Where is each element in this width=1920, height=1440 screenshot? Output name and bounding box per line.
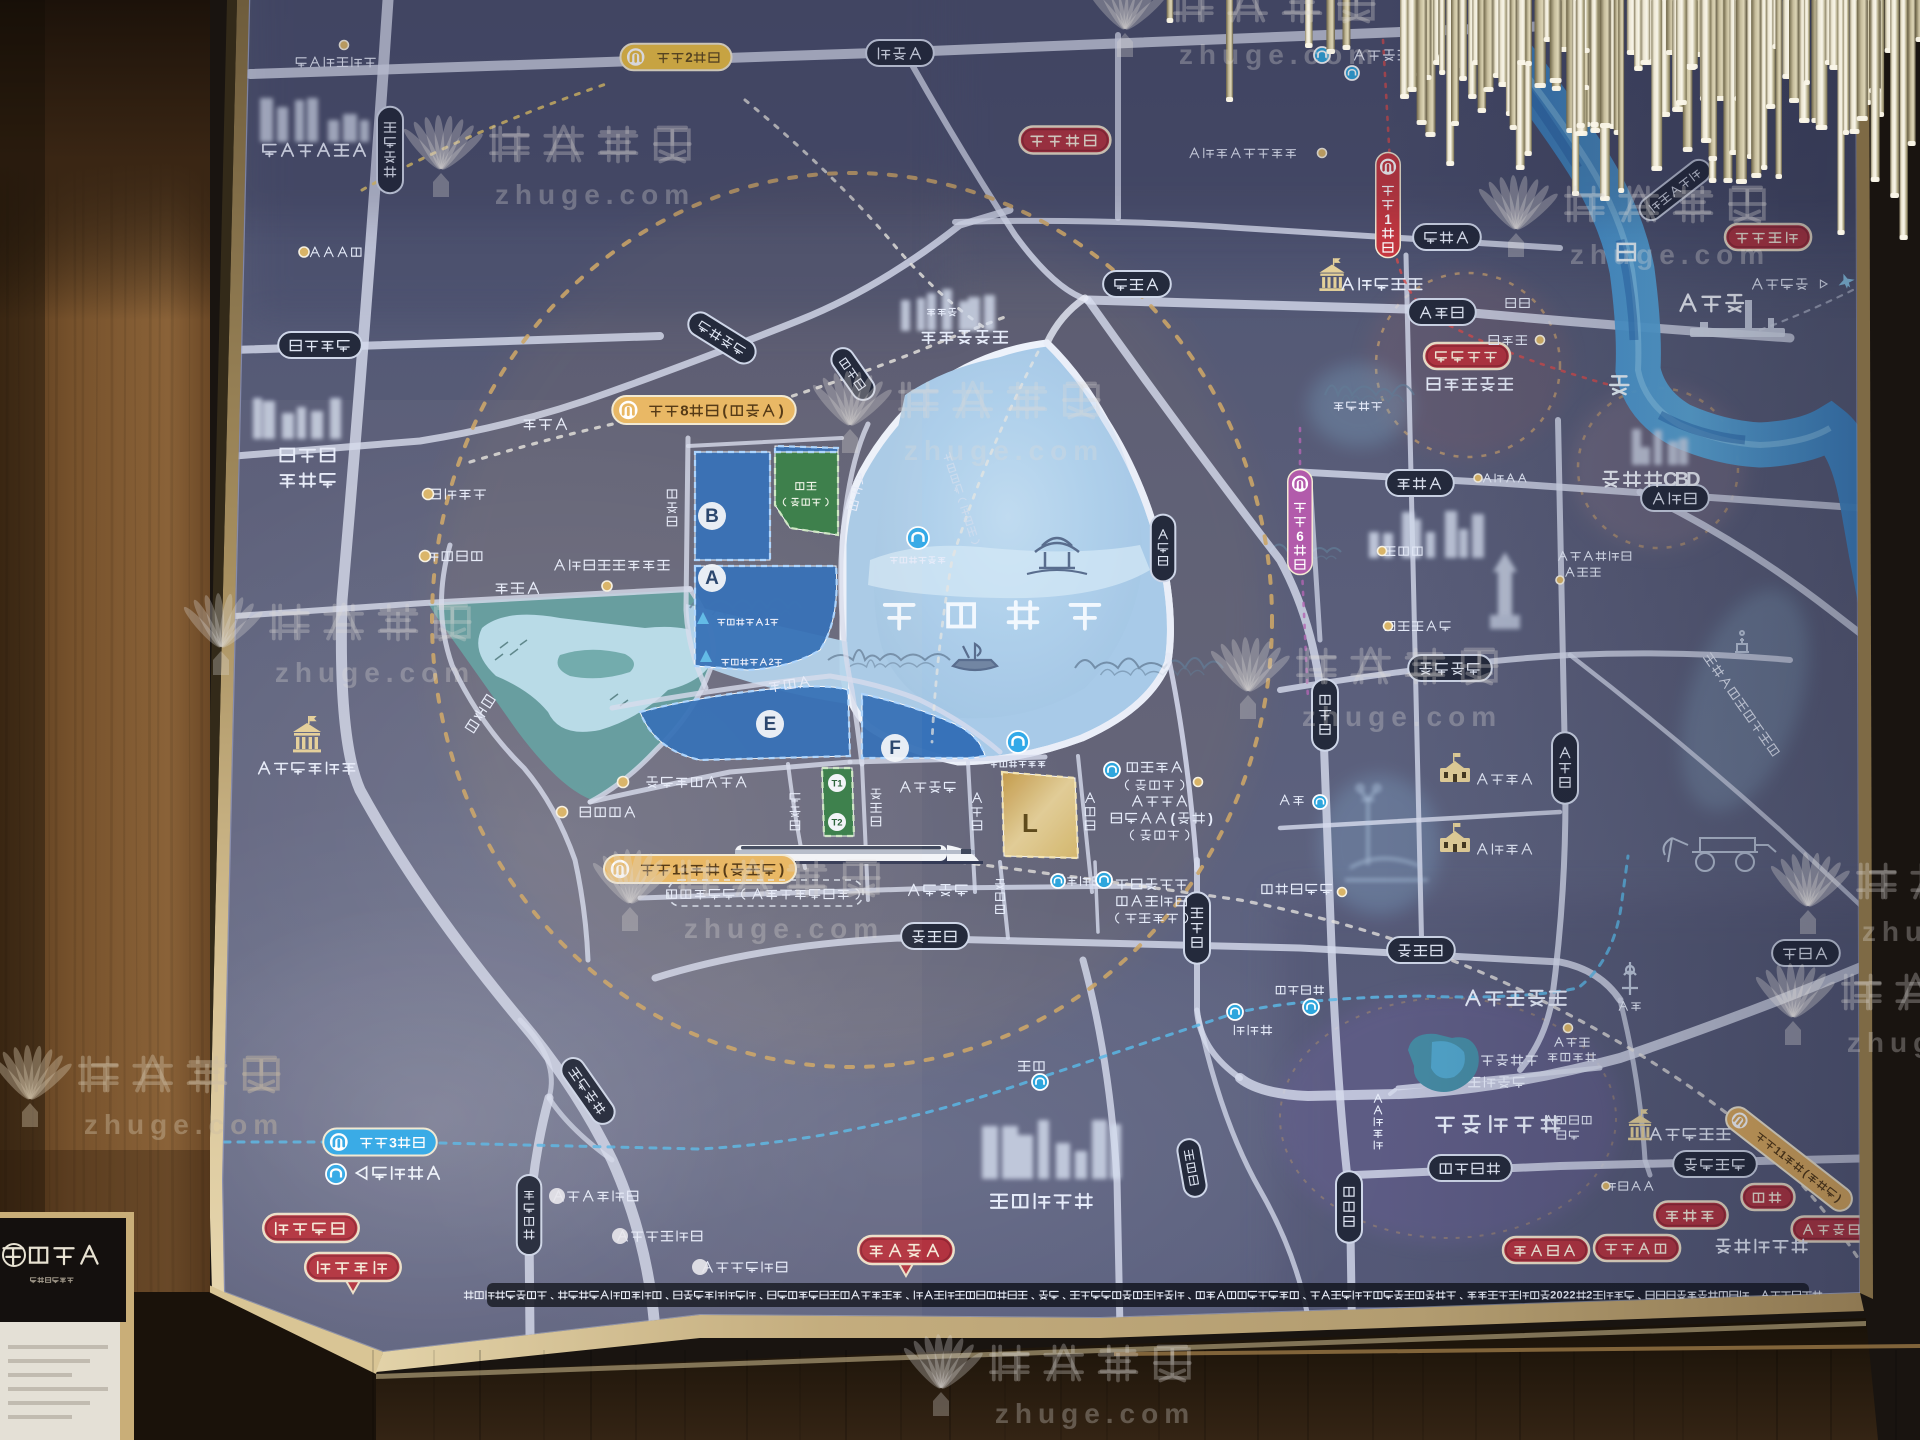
svg-text:zhuge.com: zhuge.com: [904, 435, 1104, 466]
svg-text:zhuge.com: zhuge.com: [275, 657, 475, 688]
svg-text:zhuge.com: zhuge.com: [995, 1398, 1195, 1429]
svg-text:zhuge.com: zhuge.com: [684, 913, 884, 944]
svg-text:zhuge.com: zhuge.com: [1847, 1027, 1920, 1058]
svg-text:zhuge.com: zhuge.com: [495, 179, 695, 210]
svg-text:zhuge.com: zhuge.com: [1570, 239, 1770, 270]
svg-text:zhuge.com: zhuge.com: [1302, 701, 1502, 732]
svg-text:zhuge.com: zhuge.com: [84, 1109, 284, 1140]
svg-text:zhuge.com: zhuge.com: [1862, 916, 1920, 947]
svg-text:zhuge.com: zhuge.com: [1179, 39, 1379, 70]
